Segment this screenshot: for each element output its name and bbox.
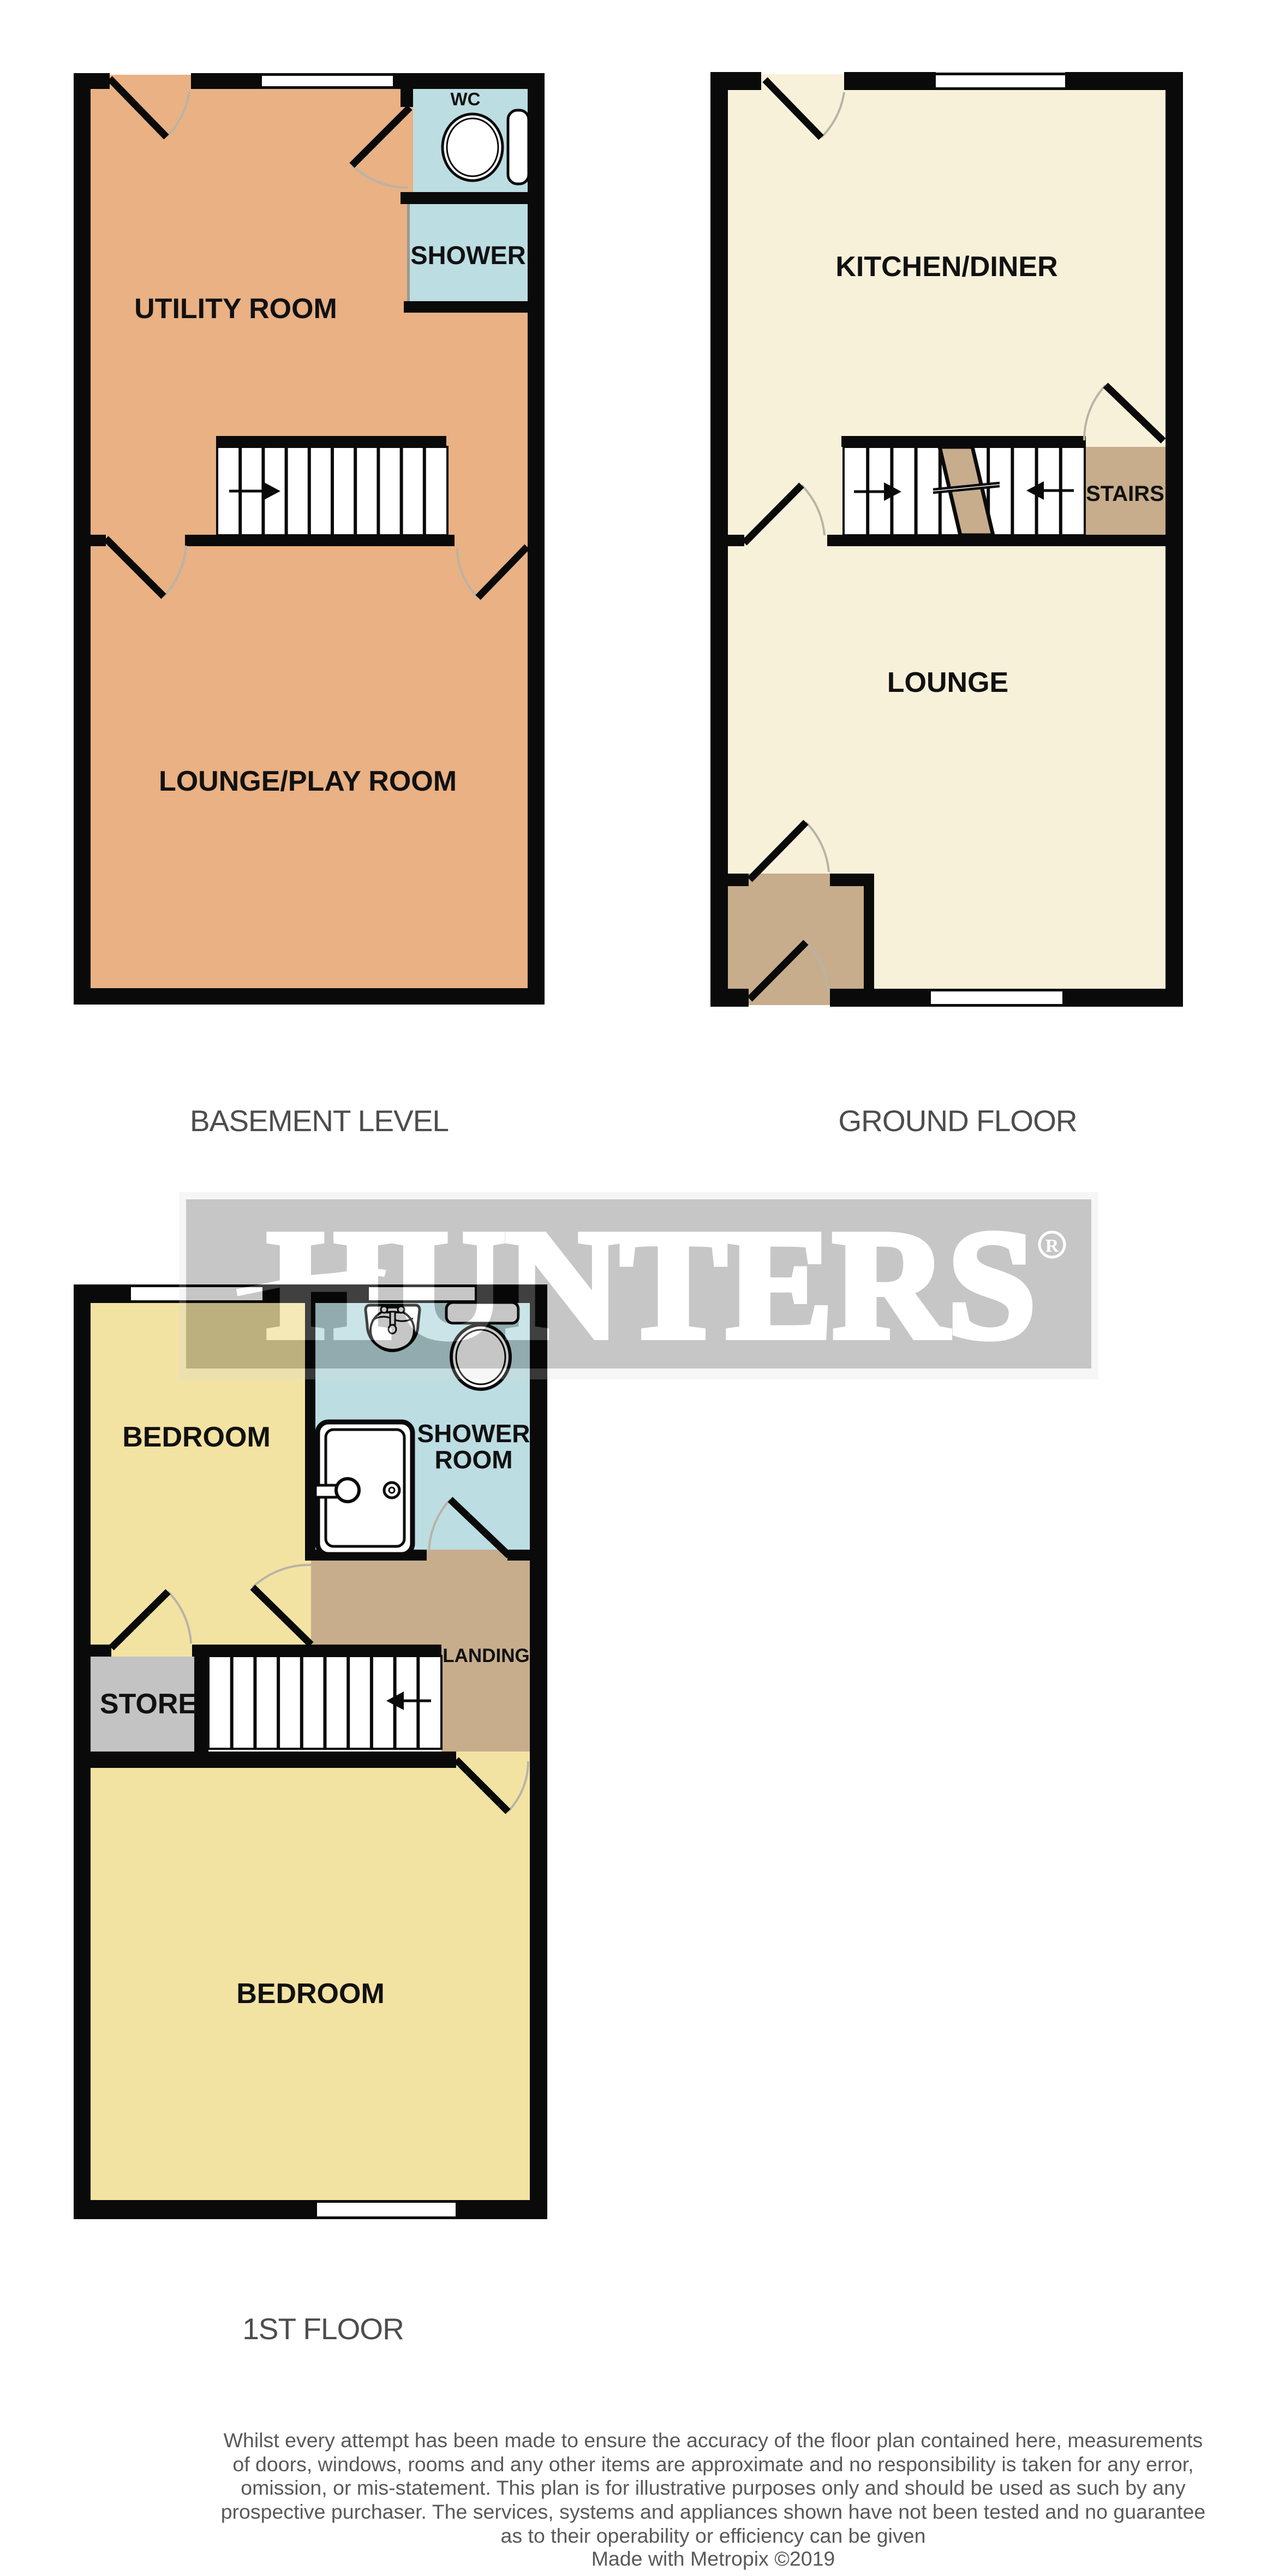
svg-text:STAIRS: STAIRS (1086, 482, 1164, 506)
svg-text:GROUND FLOOR: GROUND FLOOR (838, 1104, 1077, 1138)
svg-text:of doors, windows, rooms and a: of doors, windows, rooms and any other i… (232, 2453, 1193, 2476)
svg-text:KITCHEN/DINER: KITCHEN/DINER (835, 251, 1057, 283)
svg-text:omission, or mis-statement. Th: omission, or mis-statement. This plan is… (241, 2476, 1186, 2499)
svg-text:1ST FLOOR: 1ST FLOOR (242, 2312, 404, 2346)
svg-text:Made with Metropix ©2019: Made with Metropix ©2019 (591, 2547, 835, 2570)
svg-text:BEDROOM: BEDROOM (236, 1978, 385, 2010)
svg-text:prospective purchaser. The ser: prospective purchaser. The services, sys… (221, 2500, 1206, 2523)
svg-text:LOUNGE/PLAY ROOM: LOUNGE/PLAY ROOM (159, 766, 457, 797)
svg-text:R: R (1045, 1236, 1059, 1256)
svg-text:STORE: STORE (100, 1688, 197, 1720)
svg-text:WC: WC (451, 89, 481, 109)
svg-text:UTILITY ROOM: UTILITY ROOM (134, 293, 337, 325)
svg-text:SHOWER: SHOWER (410, 241, 526, 270)
svg-text:Whilst every attempt has been: Whilst every attempt has been made to en… (224, 2429, 1203, 2452)
svg-text:BASEMENT LEVEL: BASEMENT LEVEL (190, 1104, 449, 1138)
svg-text:LANDING: LANDING (443, 1645, 529, 1666)
svg-text:ROOM: ROOM (434, 1445, 512, 1474)
svg-text:HUNTERS: HUNTERS (267, 1198, 1036, 1371)
svg-text:BEDROOM: BEDROOM (122, 1421, 271, 1453)
svg-text:LOUNGE: LOUNGE (887, 667, 1008, 698)
svg-text:SHOWER: SHOWER (417, 1419, 530, 1448)
svg-text:as to their operability or eff: as to their operability or efficiency ca… (501, 2524, 926, 2547)
